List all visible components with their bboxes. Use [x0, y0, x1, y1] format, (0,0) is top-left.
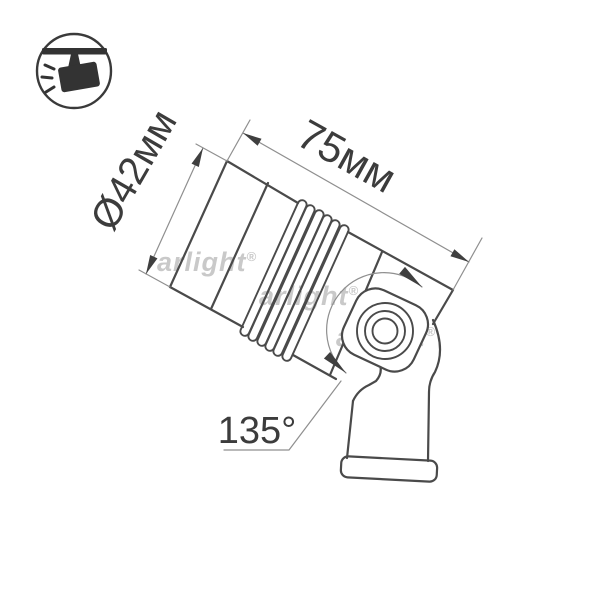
- extension-line: [453, 238, 482, 290]
- watermark-text: arlight®: [157, 247, 257, 277]
- track-spotlight-icon: [37, 34, 111, 108]
- angle-label: 135°: [218, 410, 297, 452]
- length-label: 75мм: [290, 110, 404, 202]
- dimension-arrow: [192, 146, 207, 167]
- extension-line: [227, 120, 250, 161]
- dimension-arrow: [241, 130, 261, 146]
- drawing-canvas: arlight® arlight® arlight® Ø42м: [0, 0, 600, 600]
- icon-track-bar: [42, 48, 107, 55]
- technical-drawing: arlight® arlight® arlight® Ø42м: [0, 0, 600, 600]
- diameter-label: Ø42мм: [82, 102, 185, 237]
